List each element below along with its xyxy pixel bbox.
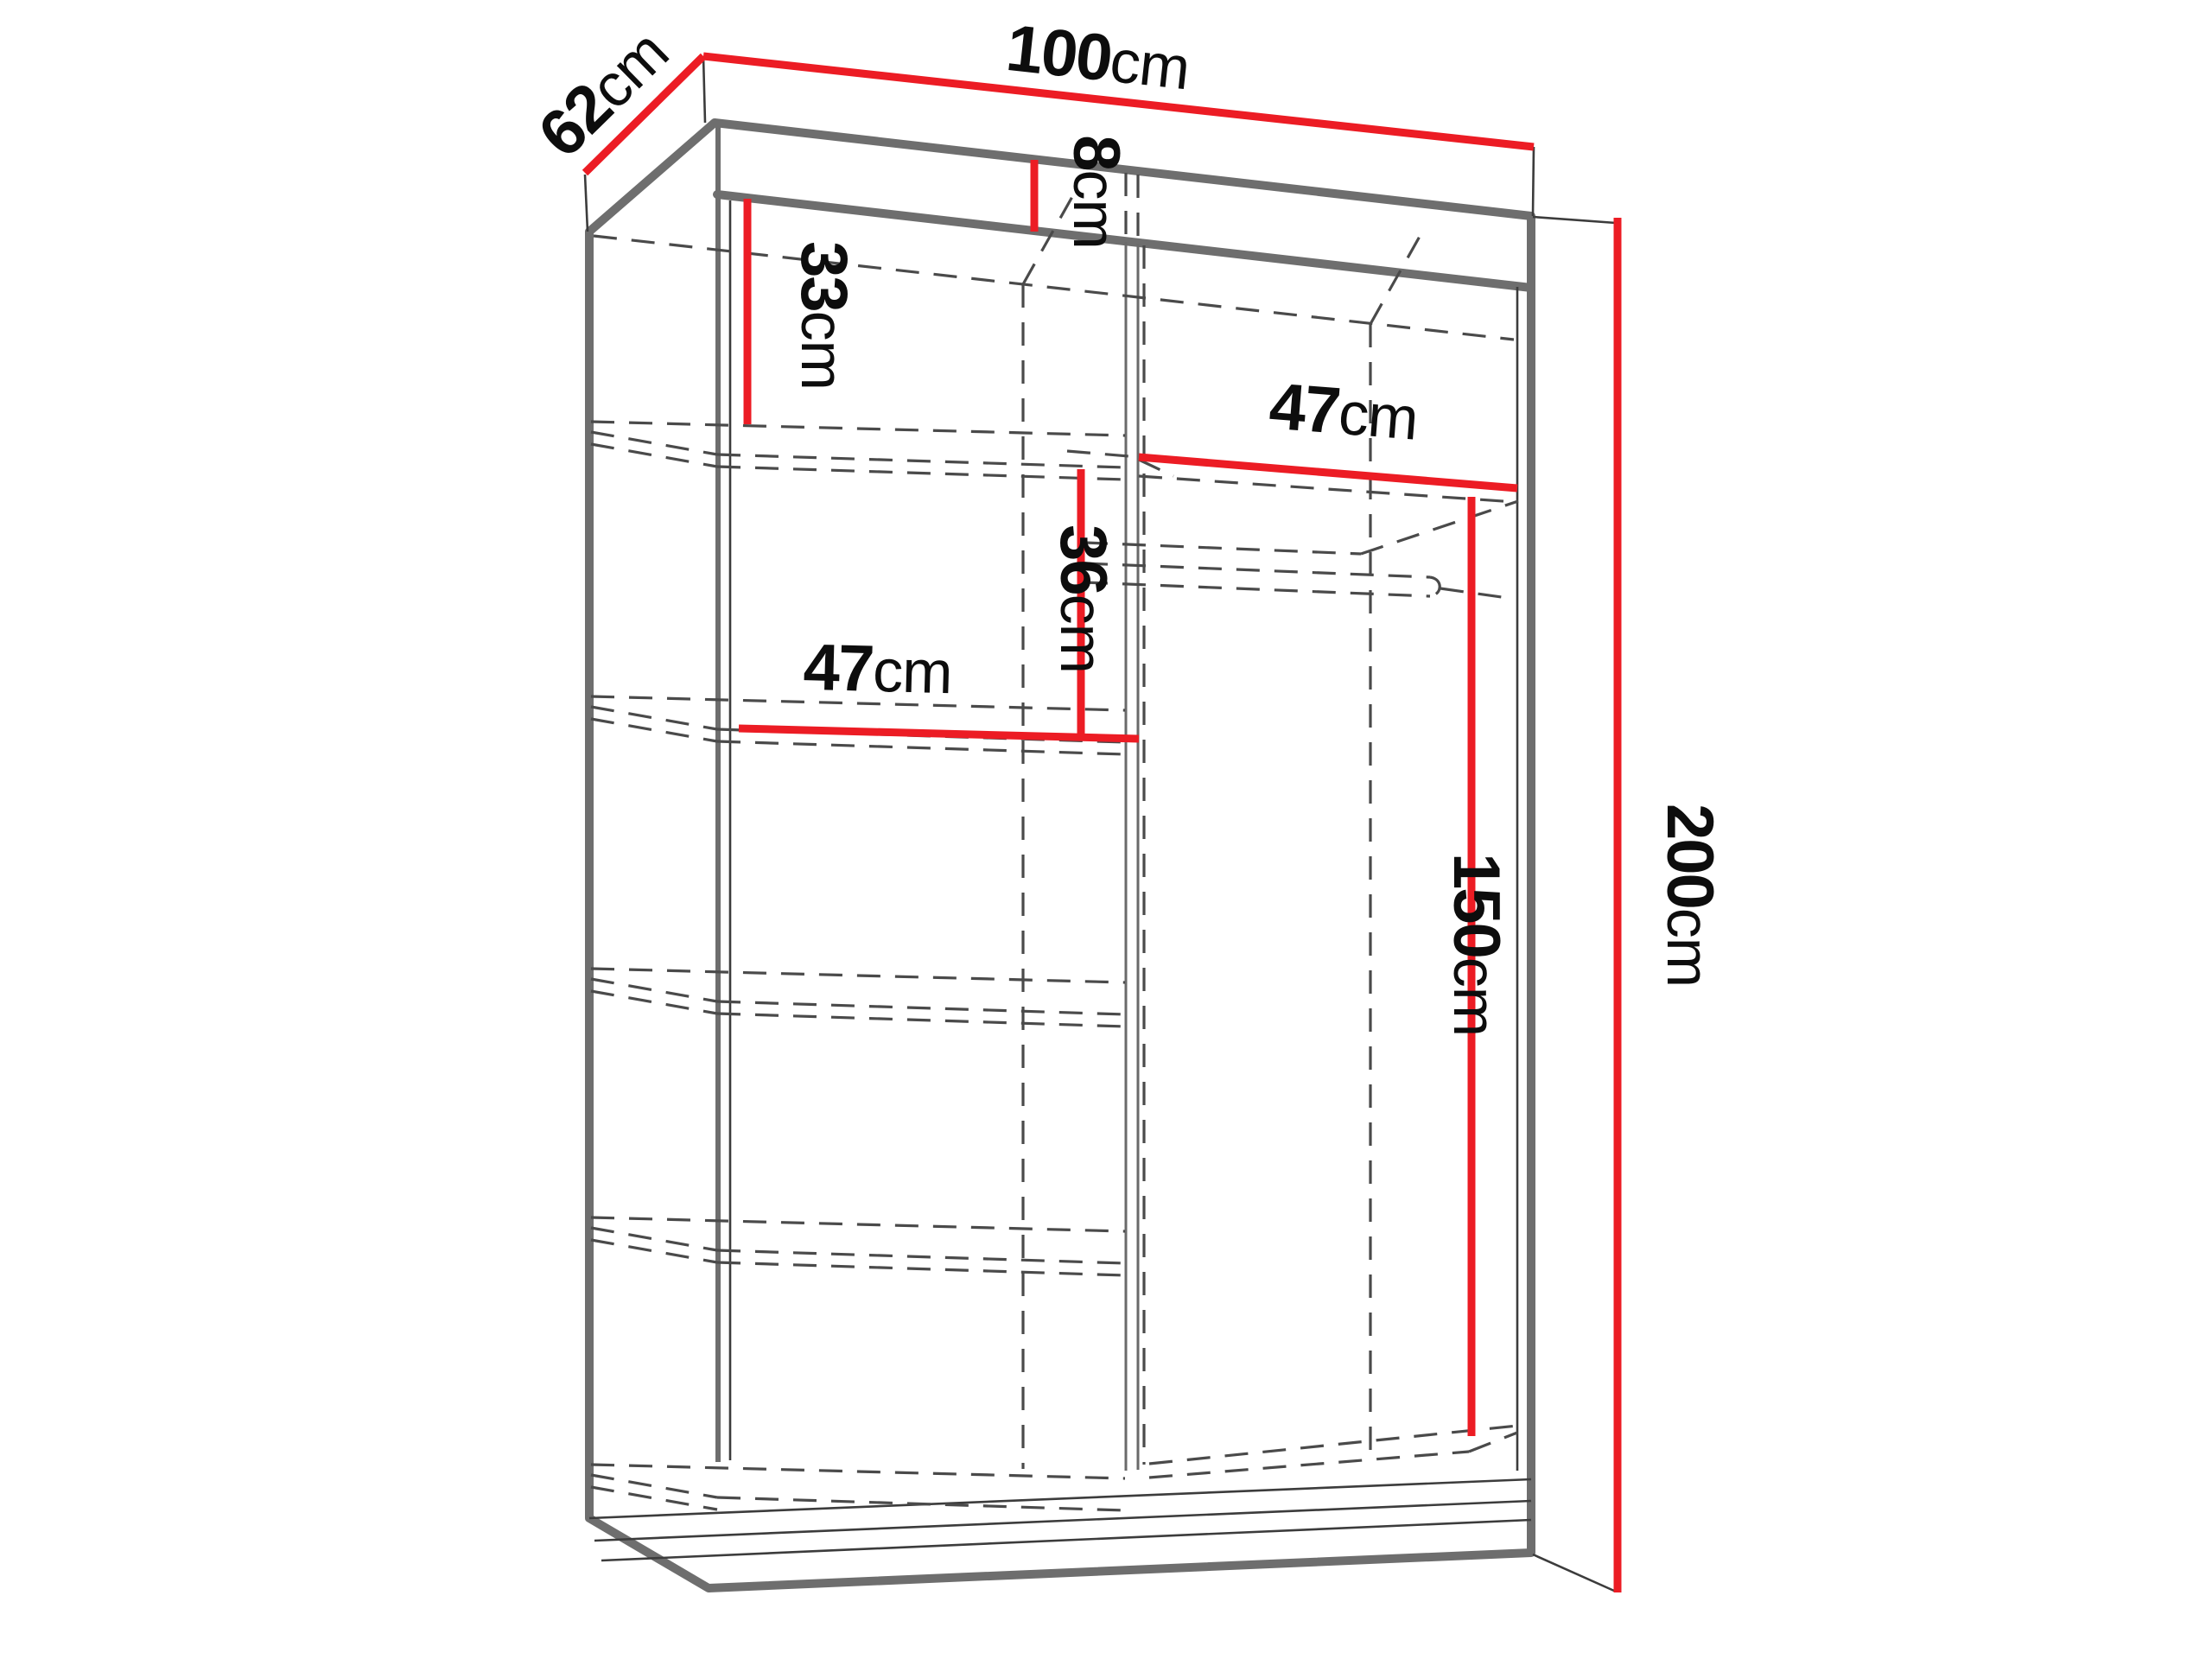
dimension-extension-lines bbox=[585, 56, 1616, 1591]
label-mid-section: 36cm bbox=[1046, 524, 1120, 673]
sliding-door-left-edge bbox=[1023, 188, 1077, 1469]
wardrobe-dimension-diagram: 62cm 100cm 8cm 33cm 47cm 36cm 47cm 150cm… bbox=[0, 0, 2212, 1659]
label-height: 200cm bbox=[1653, 804, 1726, 987]
label-upper-section: 33cm bbox=[787, 241, 861, 390]
left-shelf-1 bbox=[591, 422, 1125, 480]
cabinet-interior-lines bbox=[589, 125, 1531, 1560]
label-right-shelf: 47cm bbox=[1267, 369, 1421, 454]
diagram-canvas: 62cm 100cm 8cm 33cm 47cm 36cm 47cm 150cm… bbox=[0, 0, 2212, 1659]
label-hanging: 150cm bbox=[1440, 853, 1513, 1036]
ceiling-back-edge bbox=[594, 236, 1514, 340]
label-top-track: 8cm bbox=[1059, 135, 1133, 249]
label-left-shelf: 47cm bbox=[803, 631, 953, 708]
hanging-rod-end-cap bbox=[1430, 577, 1440, 596]
dimension-lines bbox=[585, 56, 1618, 1592]
dim-line-right-shelf-47 bbox=[1139, 457, 1517, 488]
left-shelf-4 bbox=[591, 1217, 1125, 1275]
left-shelf-3 bbox=[591, 969, 1125, 1027]
hanging-rod bbox=[1084, 563, 1514, 599]
bottom-track-line-2 bbox=[594, 1501, 1531, 1541]
label-depth: 62cm bbox=[524, 15, 682, 171]
